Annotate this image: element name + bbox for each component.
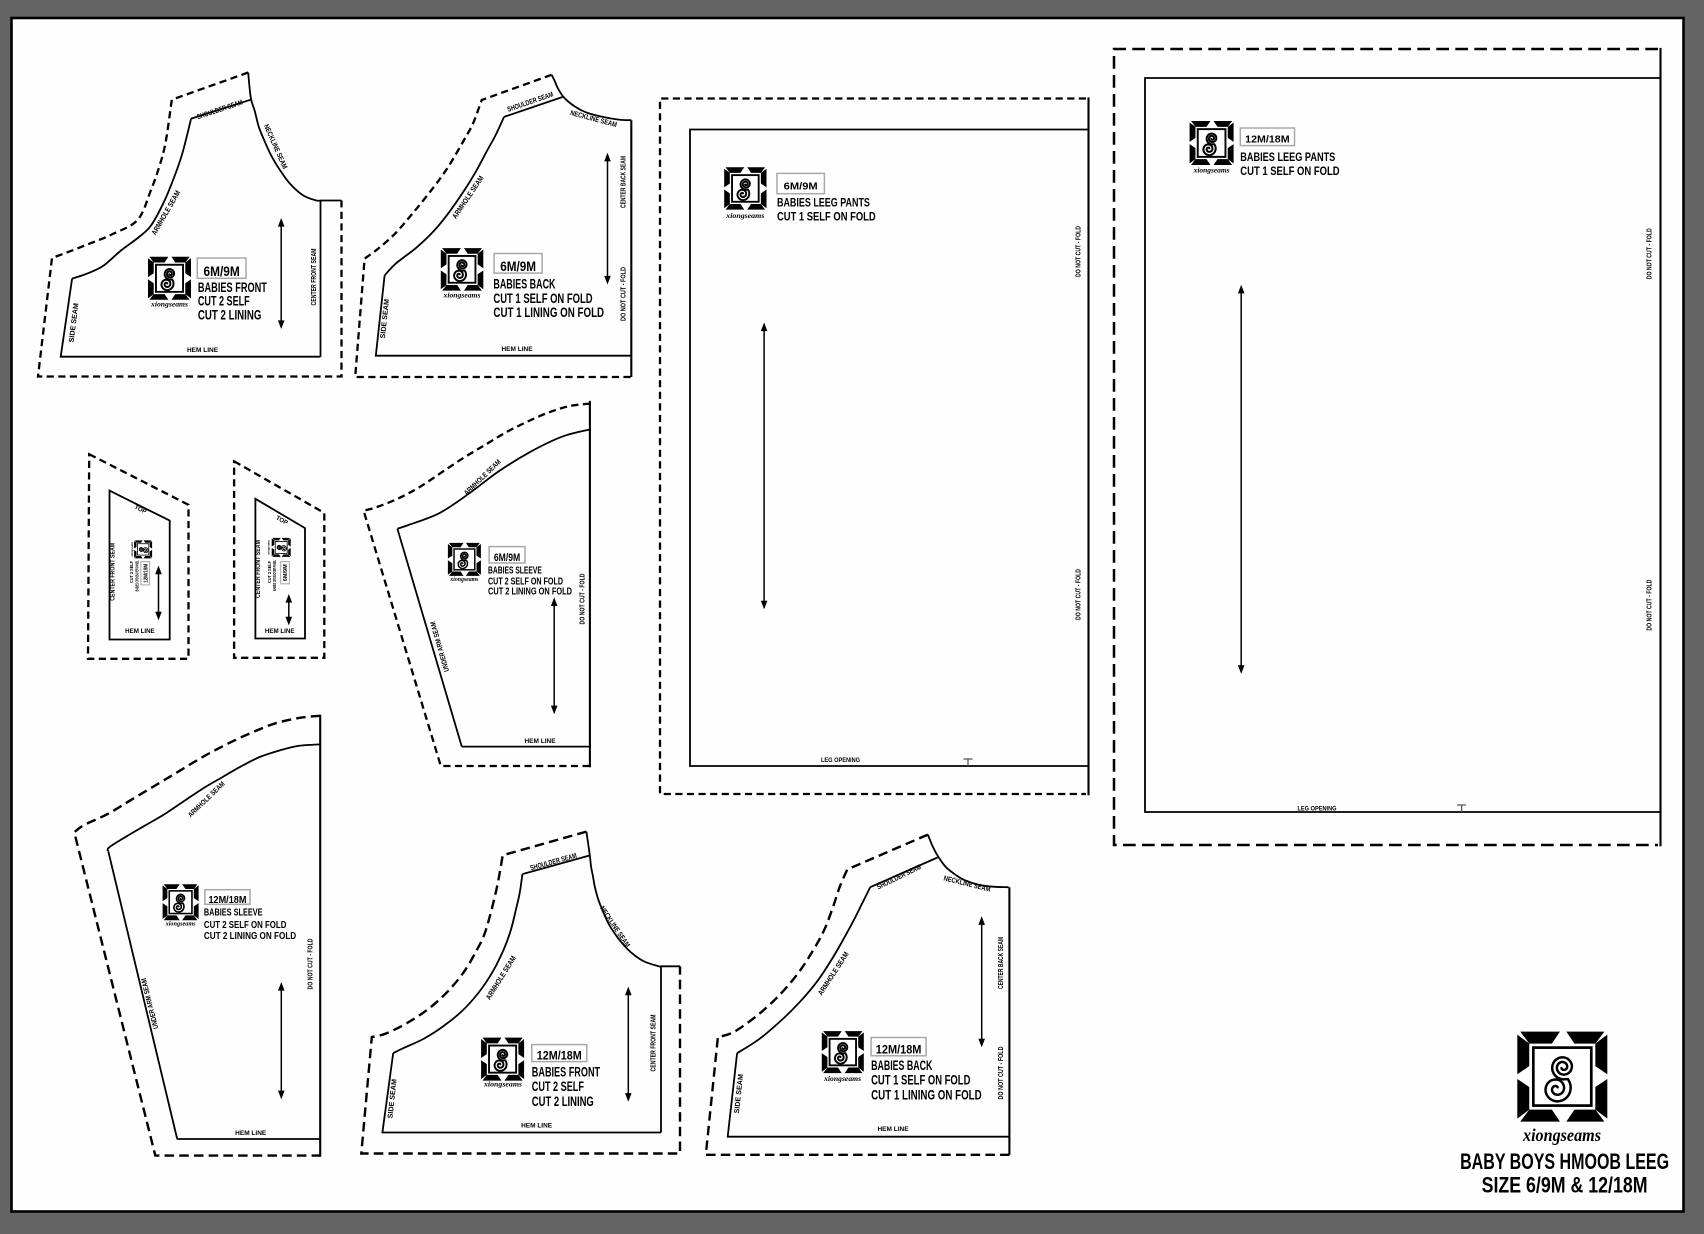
svg-text:HEM LINE: HEM LINE bbox=[235, 1130, 267, 1137]
svg-text:LEG OPENING: LEG OPENING bbox=[821, 757, 860, 764]
svg-text:HEM LINE: HEM LINE bbox=[187, 347, 219, 354]
svg-text:CUT 1 SELF ON FOLD: CUT 1 SELF ON FOLD bbox=[871, 1073, 970, 1088]
svg-text:12M/18M: 12M/18M bbox=[143, 564, 149, 583]
svg-text:LEG OPENING: LEG OPENING bbox=[1298, 806, 1337, 813]
svg-text:xiongseams: xiongseams bbox=[725, 211, 764, 220]
svg-text:BABY BOYS HMOOB LEEG: BABY BOYS HMOOB LEEG bbox=[1460, 1149, 1669, 1174]
svg-text:BABIES FRONT: BABIES FRONT bbox=[532, 1064, 601, 1079]
svg-text:6M/9M: 6M/9M bbox=[204, 263, 240, 279]
svg-text:CUT 1 SELF ON FOLD: CUT 1 SELF ON FOLD bbox=[777, 211, 876, 223]
svg-text:CUT 1 SELF ON FOLD: CUT 1 SELF ON FOLD bbox=[1240, 166, 1339, 178]
svg-text:6M/9M: 6M/9M bbox=[500, 258, 536, 274]
svg-text:CUT 1 LINING ON FOLD: CUT 1 LINING ON FOLD bbox=[871, 1088, 982, 1103]
svg-text:BABIES LEEG PANTS: BABIES LEEG PANTS bbox=[1240, 152, 1335, 164]
svg-text:12M/18M: 12M/18M bbox=[1245, 134, 1290, 146]
svg-text:BABIES FRONT: BABIES FRONT bbox=[198, 280, 268, 295]
svg-text:xiongseams: xiongseams bbox=[267, 539, 271, 556]
svg-text:DO NOT CUT - FOLD: DO NOT CUT - FOLD bbox=[580, 574, 587, 625]
svg-text:HEM LINE: HEM LINE bbox=[524, 738, 556, 745]
svg-text:DO NOT CUT - FOLD: DO NOT CUT - FOLD bbox=[1076, 569, 1083, 620]
svg-text:CUT 2 LINING: CUT 2 LINING bbox=[198, 308, 262, 323]
svg-text:xiongseams: xiongseams bbox=[150, 300, 188, 309]
svg-text:BABIES SLEEVE: BABIES SLEEVE bbox=[204, 908, 263, 919]
svg-text:DO NOT CUT - FOLD: DO NOT CUT - FOLD bbox=[1647, 580, 1654, 631]
svg-text:SIZE 6/9M & 12/18M: SIZE 6/9M & 12/18M bbox=[1482, 1173, 1648, 1198]
svg-text:CENTER FRONT SEAM: CENTER FRONT SEAM bbox=[110, 543, 117, 601]
svg-text:HEM LINE: HEM LINE bbox=[265, 628, 295, 635]
svg-text:6M/9M: 6M/9M bbox=[784, 180, 818, 192]
svg-text:BABIES LEEG PANTS: BABIES LEEG PANTS bbox=[777, 197, 870, 209]
svg-text:xiongseams: xiongseams bbox=[483, 1080, 522, 1089]
svg-text:CUT 2 LINING: CUT 2 LINING bbox=[532, 1094, 594, 1109]
svg-text:6M/9M: 6M/9M bbox=[494, 552, 520, 564]
svg-text:BABIES CROSSOVER PANEL: BABIES CROSSOVER PANEL bbox=[135, 560, 140, 591]
svg-text:DO NOT CUT - FOLD: DO NOT CUT - FOLD bbox=[621, 267, 628, 321]
svg-text:BABIES BACK: BABIES BACK bbox=[871, 1058, 932, 1073]
svg-text:CUT 1 SELF ON FOLD: CUT 1 SELF ON FOLD bbox=[493, 291, 592, 306]
svg-text:xiongseams: xiongseams bbox=[449, 577, 479, 583]
svg-text:CUT 2 SELF ON FOLD: CUT 2 SELF ON FOLD bbox=[204, 920, 287, 931]
svg-text:CENTER FRONT SEAM: CENTER FRONT SEAM bbox=[311, 248, 318, 305]
svg-text:CENTER FRONT SEAM: CENTER FRONT SEAM bbox=[651, 1014, 658, 1071]
svg-text:xiongseams: xiongseams bbox=[442, 291, 480, 300]
svg-text:CENTER FRONT SEAM: CENTER FRONT SEAM bbox=[255, 540, 262, 598]
svg-text:BABIES CROSSOVER PANEL: BABIES CROSSOVER PANEL bbox=[272, 560, 277, 591]
svg-text:CUT 2 SELF: CUT 2 SELF bbox=[129, 561, 134, 583]
svg-text:CUT 2 SELF: CUT 2 SELF bbox=[198, 294, 250, 309]
svg-text:CUT 2 SELF: CUT 2 SELF bbox=[267, 561, 272, 583]
svg-text:BABIES BACK: BABIES BACK bbox=[493, 277, 555, 292]
svg-text:xiongseams: xiongseams bbox=[165, 922, 197, 928]
svg-text:DO NOT CUT - FOLD: DO NOT CUT - FOLD bbox=[308, 939, 315, 990]
svg-text:CUT 2 LINING ON FOLD: CUT 2 LINING ON FOLD bbox=[204, 931, 296, 942]
svg-text:xiongseams: xiongseams bbox=[130, 541, 134, 558]
svg-text:12M/18M: 12M/18M bbox=[876, 1042, 922, 1056]
svg-text:12M/18M: 12M/18M bbox=[208, 894, 246, 906]
svg-text:HEM LINE: HEM LINE bbox=[125, 628, 155, 635]
svg-text:CUT 1 LINING ON FOLD: CUT 1 LINING ON FOLD bbox=[493, 305, 604, 320]
svg-text:6M/9M: 6M/9M bbox=[283, 564, 289, 581]
svg-text:HEM LINE: HEM LINE bbox=[501, 346, 533, 353]
svg-text:CUT 2 SELF: CUT 2 SELF bbox=[532, 1079, 584, 1094]
svg-text:DO NOT CUT - FOLD: DO NOT CUT - FOLD bbox=[1647, 228, 1654, 279]
svg-text:BABIES SLEEVE: BABIES SLEEVE bbox=[488, 566, 542, 577]
svg-text:CENTER BACK SEAM: CENTER BACK SEAM bbox=[998, 937, 1005, 989]
svg-text:CUT 2 LINING ON FOLD: CUT 2 LINING ON FOLD bbox=[488, 587, 572, 598]
svg-text:HEM LINE: HEM LINE bbox=[877, 1126, 909, 1133]
svg-text:xiongseams: xiongseams bbox=[1522, 1125, 1601, 1145]
svg-text:12M/18M: 12M/18M bbox=[537, 1049, 582, 1063]
svg-text:DO NOT CUT - FOLD: DO NOT CUT - FOLD bbox=[998, 1047, 1005, 1100]
svg-text:HEM LINE: HEM LINE bbox=[521, 1123, 553, 1130]
svg-text:CENTER BACK SEAM: CENTER BACK SEAM bbox=[621, 156, 628, 208]
svg-text:xiongseams: xiongseams bbox=[1193, 166, 1230, 175]
svg-text:DO NOT CUT - FOLD: DO NOT CUT - FOLD bbox=[1076, 226, 1083, 277]
svg-text:xiongseams: xiongseams bbox=[823, 1074, 861, 1083]
